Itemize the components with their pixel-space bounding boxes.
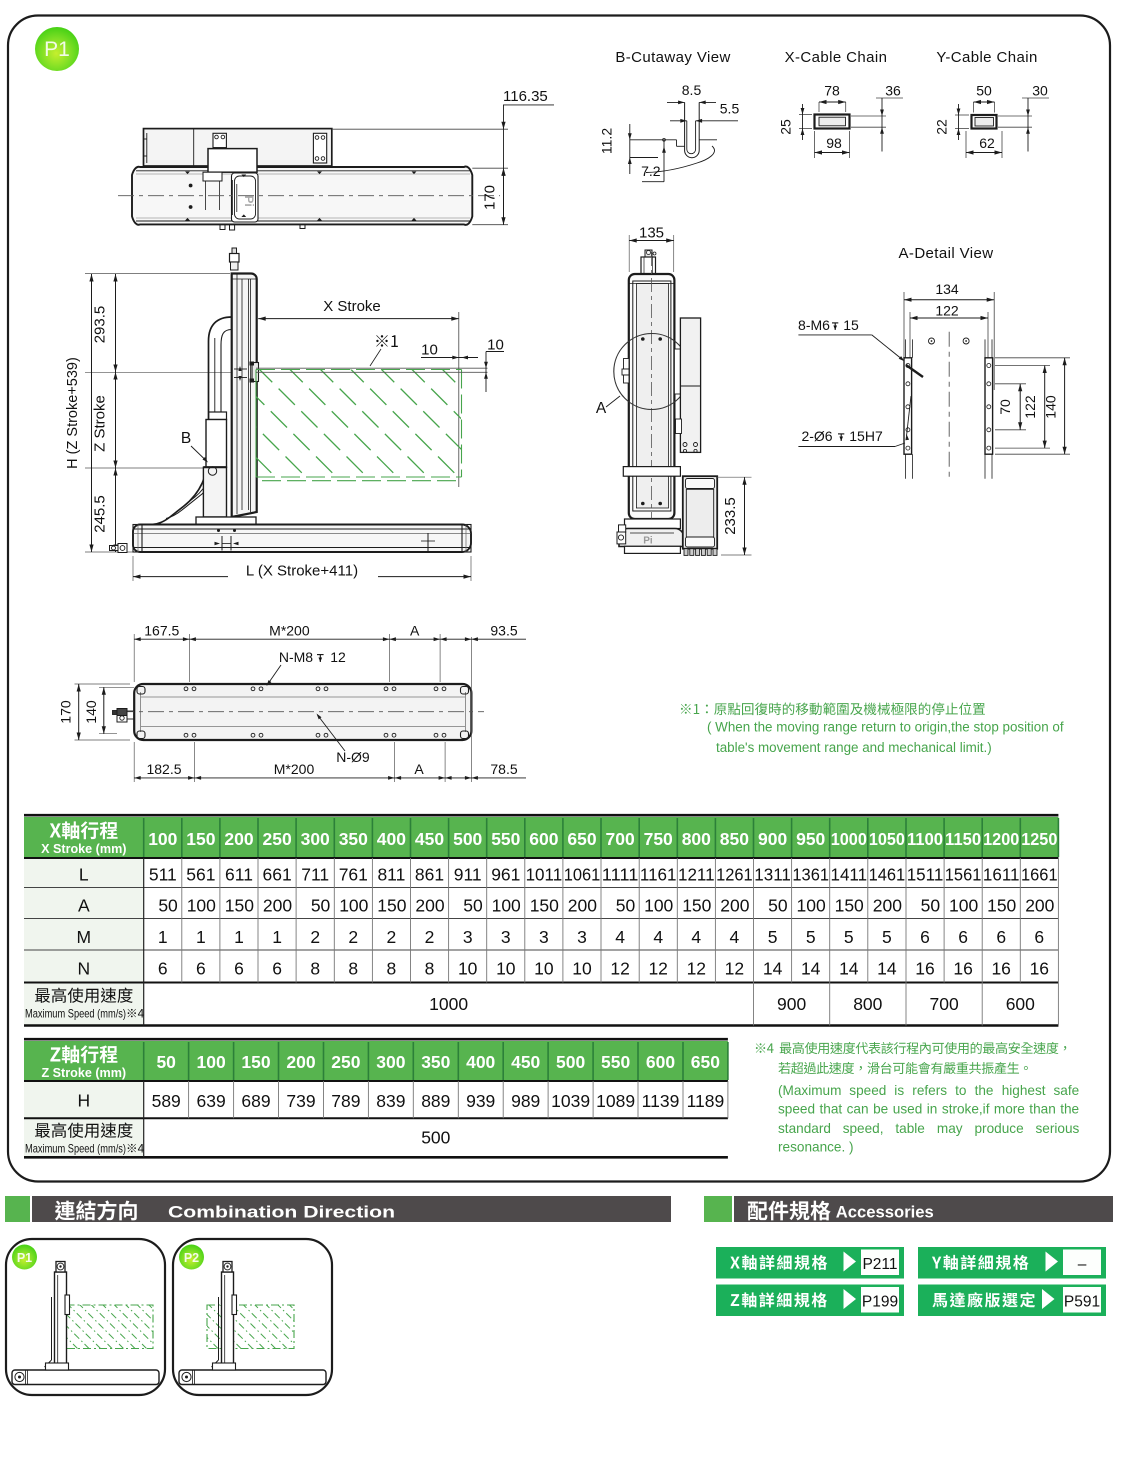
svg-text:100: 100 [148,829,177,849]
svg-text:1050: 1050 [869,829,905,849]
svg-text:4: 4 [138,1143,145,1156]
svg-text:table: table [895,1121,924,1136]
svg-text:10: 10 [572,959,592,979]
svg-text:N: N [77,959,90,979]
svg-text:233.5: 233.5 [722,497,739,535]
svg-text:700: 700 [605,829,634,849]
svg-text:safe: safe [1054,1083,1080,1098]
svg-text:H: H [77,1091,90,1111]
svg-text:10: 10 [458,959,478,979]
svg-text:P199: P199 [862,1294,898,1311]
svg-text:550: 550 [491,829,520,849]
svg-text:14: 14 [763,959,783,979]
svg-text:1089: 1089 [596,1091,635,1111]
svg-text:750: 750 [644,829,673,849]
svg-text:25: 25 [778,119,794,135]
svg-text:4: 4 [615,927,625,947]
svg-text:8: 8 [310,959,320,979]
svg-text:3: 3 [539,927,549,947]
svg-text:650: 650 [567,829,596,849]
svg-text:200: 200 [286,1052,315,1072]
svg-text:M: M [77,927,92,947]
svg-text:150: 150 [225,896,254,916]
svg-text:L (X Stroke+411): L (X Stroke+411) [246,563,358,580]
svg-text:8: 8 [348,959,358,979]
svg-text:1311: 1311 [754,865,791,885]
svg-text:3: 3 [577,927,587,947]
svg-text:50: 50 [976,83,992,99]
svg-text:that: that [820,1102,843,1117]
svg-text:450: 450 [415,829,444,849]
svg-text:989: 989 [511,1091,540,1111]
svg-text:93.5: 93.5 [490,623,517,639]
svg-text:12: 12 [725,959,744,979]
svg-text:may: may [937,1121,963,1136]
svg-text:4: 4 [138,1008,145,1021]
svg-text:911: 911 [454,865,482,885]
svg-text:M*200: M*200 [269,623,310,639]
svg-text:standard: standard [778,1121,831,1136]
svg-text:150: 150 [377,896,406,916]
svg-text:150: 150 [186,829,215,849]
svg-text:1: 1 [158,927,168,947]
svg-text:P591: P591 [1064,1294,1100,1311]
svg-text:1: 1 [196,927,206,947]
svg-text:600: 600 [646,1052,675,1072]
svg-text:78: 78 [824,83,840,99]
svg-text:939: 939 [466,1091,495,1111]
svg-text:167.5: 167.5 [144,623,179,639]
svg-text:than: than [1029,1102,1055,1117]
svg-text:Y-Cable Chain: Y-Cable Chain [936,49,1037,66]
svg-text:1461: 1461 [869,865,906,885]
svg-text:134: 134 [935,281,959,297]
svg-text:200: 200 [873,896,902,916]
svg-text:1000: 1000 [429,994,468,1014]
svg-text:A: A [410,623,420,639]
svg-text:10: 10 [487,337,504,354]
svg-text:the: the [975,1083,994,1098]
svg-text:X Stroke (mm): X Stroke (mm) [41,842,126,856]
svg-text:5.5: 5.5 [720,101,740,117]
svg-text:639: 639 [196,1091,225,1111]
svg-text:350: 350 [421,1052,450,1072]
svg-text:used: used [893,1102,922,1117]
svg-text:6: 6 [158,959,168,979]
svg-text:800: 800 [682,829,711,849]
svg-text:6: 6 [234,959,244,979]
svg-text:( When the moving range return: ( When the moving range return to origin… [707,720,1064,735]
svg-text:6: 6 [196,959,206,979]
svg-text:1661: 1661 [1021,865,1058,885]
svg-text:14: 14 [877,959,897,979]
svg-text:2: 2 [348,927,358,947]
svg-text:6: 6 [958,927,968,947]
svg-text:50: 50 [311,896,331,916]
svg-text:900: 900 [758,829,787,849]
svg-text:511: 511 [149,865,177,885]
svg-text:36: 36 [885,83,901,99]
svg-text:250: 250 [262,829,291,849]
svg-text:850: 850 [720,829,749,849]
svg-text:739: 739 [286,1091,315,1111]
svg-text:4: 4 [730,927,740,947]
svg-text:can: can [847,1102,869,1117]
svg-text:5: 5 [806,927,816,947]
svg-text:1000: 1000 [831,829,867,849]
svg-text:is: is [894,1083,904,1098]
svg-text:200: 200 [720,896,749,916]
svg-text:100: 100 [187,896,216,916]
svg-text:2-Ø6: 2-Ø6 [801,428,832,444]
svg-text:600: 600 [529,829,558,849]
svg-text:78.5: 78.5 [490,761,517,777]
svg-text:150: 150 [682,896,711,916]
svg-text:serious: serious [1036,1121,1080,1136]
svg-text:12: 12 [330,649,346,665]
svg-text:293.5: 293.5 [92,306,109,344]
svg-text:P2: P2 [184,1251,199,1265]
svg-text:B: B [181,430,191,447]
svg-text:16: 16 [915,959,934,979]
svg-text:100: 100 [196,1052,225,1072]
svg-text:1150: 1150 [945,829,981,849]
svg-text:1511: 1511 [907,865,944,885]
svg-text:839: 839 [376,1091,405,1111]
svg-text:140: 140 [1043,395,1059,419]
svg-text:200: 200 [568,896,597,916]
svg-text:produce: produce [975,1121,1024,1136]
svg-text:15: 15 [843,317,859,333]
svg-text:122: 122 [1022,395,1038,419]
svg-text:889: 889 [421,1091,450,1111]
svg-text:300: 300 [301,829,330,849]
svg-text:7.2: 7.2 [641,163,661,179]
svg-text:Z Stroke (mm): Z Stroke (mm) [41,1066,126,1080]
svg-text:Pi: Pi [643,536,653,547]
svg-text:X Stroke: X Stroke [323,298,381,315]
svg-text:16: 16 [991,959,1010,979]
svg-text:L: L [79,865,89,885]
svg-text:1361: 1361 [792,865,829,885]
svg-text:200: 200 [1025,896,1054,916]
svg-text:589: 589 [152,1091,181,1111]
svg-text:761: 761 [339,865,368,885]
svg-text:1111: 1111 [602,865,639,885]
svg-text:8: 8 [425,959,435,979]
svg-text:5: 5 [768,927,778,947]
svg-text:1261: 1261 [716,865,753,885]
svg-text:16: 16 [953,959,972,979]
svg-text:1: 1 [234,927,244,947]
svg-text:500: 500 [421,1128,450,1148]
svg-text:70: 70 [997,399,1013,415]
svg-text:A: A [414,761,424,777]
svg-text:speed: speed [849,1083,886,1098]
svg-text:12: 12 [687,959,706,979]
svg-text:1061: 1061 [564,865,601,885]
svg-text:more: more [994,1102,1025,1117]
svg-text:50: 50 [768,896,788,916]
svg-text:2: 2 [310,927,320,947]
svg-text:350: 350 [339,829,368,849]
svg-text:15H7: 15H7 [849,428,883,444]
svg-text:A-Detail View: A-Detail View [899,245,994,262]
svg-text:1139: 1139 [642,1091,680,1111]
svg-text:A: A [596,400,607,417]
svg-text:11.2: 11.2 [599,128,615,154]
svg-text:Maximum Speed (mm/s): Maximum Speed (mm/s) [25,1143,126,1156]
svg-text:200: 200 [415,896,444,916]
svg-text:861: 861 [415,865,444,885]
svg-text:(Maximum: (Maximum [778,1083,841,1098]
svg-text:1039: 1039 [551,1091,590,1111]
svg-text:100: 100 [796,896,825,916]
svg-text:500: 500 [556,1052,585,1072]
svg-text:170: 170 [482,185,499,210]
svg-text:table's movement range and mec: table's movement range and mechanical li… [716,740,992,755]
svg-text:B-Cutaway View: B-Cutaway View [615,49,730,66]
svg-text:150: 150 [987,896,1016,916]
svg-text:Z Stroke: Z Stroke [92,395,109,452]
svg-text:100: 100 [949,896,978,916]
svg-text:100: 100 [339,896,368,916]
svg-text:2: 2 [425,927,435,947]
svg-text:30: 30 [1032,83,1048,99]
svg-text:245.5: 245.5 [92,495,109,533]
svg-text:1200: 1200 [983,829,1019,849]
svg-text:–: – [1078,1256,1087,1273]
svg-text:50: 50 [156,1052,176,1072]
svg-text:611: 611 [225,865,253,885]
svg-text:be: be [873,1102,888,1117]
svg-text:6: 6 [272,959,282,979]
svg-text:8.5: 8.5 [682,82,702,98]
svg-text:650: 650 [691,1052,720,1072]
svg-text:5: 5 [844,927,854,947]
svg-text:116.35: 116.35 [503,88,548,105]
svg-text:the: the [1060,1102,1079,1117]
svg-text:6: 6 [996,927,1006,947]
svg-text:150: 150 [530,896,559,916]
svg-text:400: 400 [377,829,406,849]
svg-text:10: 10 [534,959,554,979]
svg-text:highest: highest [1002,1083,1046,1098]
svg-text:100: 100 [644,896,673,916]
svg-text:P211: P211 [862,1256,897,1273]
svg-text:150: 150 [835,896,864,916]
svg-text:135: 135 [639,225,664,242]
svg-text:1411: 1411 [830,865,867,885]
svg-text:Pi: Pi [242,195,256,206]
svg-text:450: 450 [511,1052,540,1072]
svg-text:5: 5 [882,927,892,947]
svg-text:M*200: M*200 [274,761,315,777]
svg-text:8-M6: 8-M6 [798,317,830,333]
svg-text:Maximum Speed (mm/s): Maximum Speed (mm/s) [25,1008,126,1021]
svg-text:811: 811 [377,865,405,885]
svg-text:refers: refers [912,1083,947,1098]
svg-text:P1: P1 [17,1251,32,1265]
svg-text:A: A [78,896,90,916]
svg-text:6: 6 [920,927,930,947]
svg-text:689: 689 [241,1091,270,1111]
svg-text:14: 14 [801,959,821,979]
svg-text:2: 2 [387,927,397,947]
svg-text:1561: 1561 [945,865,982,885]
svg-text:in: in [927,1102,938,1117]
svg-text:12: 12 [648,959,667,979]
svg-text:3: 3 [501,927,511,947]
svg-text:950: 950 [796,829,825,849]
svg-text:1250: 1250 [1021,829,1057,849]
svg-text:600: 600 [1006,994,1035,1014]
svg-text:789: 789 [331,1091,360,1111]
svg-text:961: 961 [491,865,520,885]
svg-text:561: 561 [186,865,215,885]
svg-text:to: to [955,1083,966,1098]
svg-text:50: 50 [921,896,941,916]
svg-text:711: 711 [301,865,329,885]
svg-text:200: 200 [263,896,292,916]
svg-text:1161: 1161 [640,865,677,885]
svg-text:150: 150 [241,1052,270,1072]
svg-text:1189: 1189 [687,1091,725,1111]
svg-text:140: 140 [83,700,99,724]
svg-text:Accessories: Accessories [836,1203,934,1222]
svg-text:N-Ø9: N-Ø9 [336,749,370,765]
svg-text:200: 200 [224,829,253,849]
svg-text:800: 800 [853,994,882,1014]
svg-text:4: 4 [653,927,663,947]
svg-text:resonance. ): resonance. ) [778,1140,854,1155]
svg-text:12: 12 [610,959,629,979]
svg-text:62: 62 [979,135,995,151]
svg-text:98: 98 [826,135,842,151]
svg-text:16: 16 [1030,959,1049,979]
svg-text:8: 8 [387,959,397,979]
svg-text:speed,: speed, [843,1121,884,1136]
svg-text:1011: 1011 [526,865,563,885]
svg-text:3: 3 [463,927,473,947]
svg-text:1100: 1100 [907,829,943,849]
svg-text:22: 22 [934,119,950,135]
svg-text:50: 50 [463,896,483,916]
svg-text:Combination Direction: Combination Direction [168,1203,395,1222]
svg-text:10: 10 [421,342,438,359]
svg-text:1611: 1611 [983,865,1020,885]
svg-text:300: 300 [376,1052,405,1072]
svg-text:stroke,if: stroke,if [942,1102,990,1117]
svg-text:P1: P1 [44,38,70,61]
svg-text:182.5: 182.5 [146,761,181,777]
svg-text:H (Z Stroke+539): H (Z Stroke+539) [65,357,81,469]
svg-text:550: 550 [601,1052,630,1072]
svg-text:100: 100 [492,896,521,916]
svg-text:250: 250 [331,1052,360,1072]
svg-text:1: 1 [272,927,282,947]
svg-text:170: 170 [58,700,74,724]
svg-text:speed: speed [778,1102,815,1117]
svg-text:4: 4 [691,927,701,947]
svg-text:10: 10 [496,959,516,979]
svg-text:N-M8: N-M8 [279,649,313,665]
svg-text:400: 400 [466,1052,495,1072]
svg-text:661: 661 [262,865,291,885]
svg-text:14: 14 [839,959,859,979]
svg-text:700: 700 [929,994,958,1014]
svg-text:500: 500 [453,829,482,849]
svg-text:122: 122 [935,303,959,319]
svg-text:6: 6 [1034,927,1044,947]
svg-text:900: 900 [777,994,806,1014]
svg-text:1211: 1211 [678,865,715,885]
svg-text:50: 50 [158,896,178,916]
svg-text:X-Cable Chain: X-Cable Chain [785,49,888,66]
svg-text:50: 50 [616,896,636,916]
